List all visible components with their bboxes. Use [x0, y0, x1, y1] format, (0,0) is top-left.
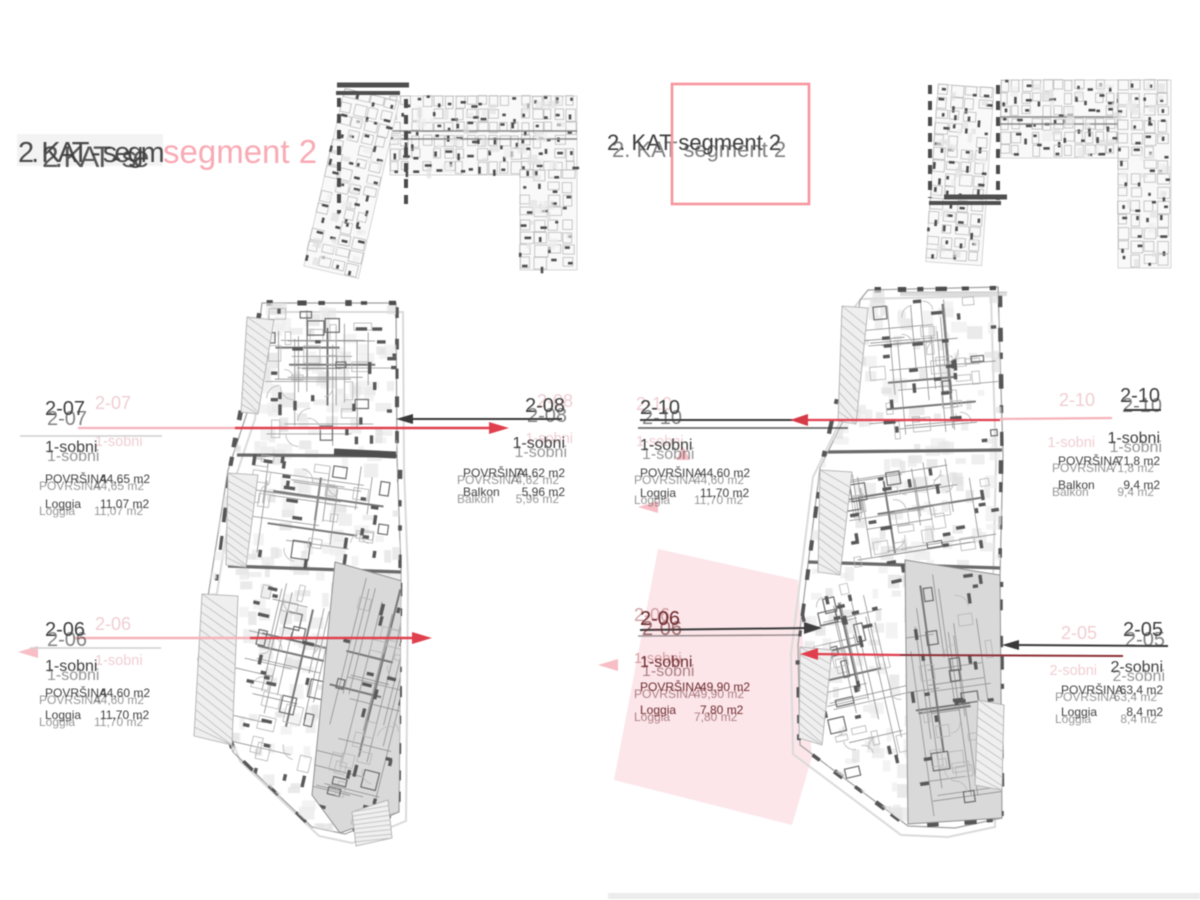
svg-text:11,07 m2: 11,07 m2: [94, 504, 143, 518]
svg-text:2-07: 2-07: [95, 393, 131, 413]
svg-text:POVRŠINA: POVRŠINA: [39, 692, 101, 707]
svg-text:7,80 m2: 7,80 m2: [694, 710, 738, 724]
svg-text:9,4 m2: 9,4 m2: [1117, 485, 1154, 499]
svg-text:POVRŠINA: POVRŠINA: [634, 472, 696, 487]
svg-text:8,4 m2: 8,4 m2: [1120, 712, 1157, 726]
svg-text:11,70 m2: 11,70 m2: [694, 493, 743, 507]
svg-text:Balkon: Balkon: [1052, 485, 1089, 499]
svg-text:1-sobni: 1-sobni: [47, 448, 99, 465]
svg-text:segment 2: segment 2: [163, 133, 317, 170]
svg-text:2-05: 2-05: [1061, 623, 1097, 643]
svg-text:2-07: 2-07: [47, 408, 87, 430]
svg-text:1-sobni: 1-sobni: [642, 663, 694, 680]
svg-text:2-10: 2-10: [642, 407, 682, 429]
svg-text:2. KAT - se: 2. KAT - se: [42, 141, 149, 174]
svg-text:POVRŠINA: POVRŠINA: [1052, 460, 1114, 475]
svg-text:11,70 m2: 11,70 m2: [94, 715, 143, 729]
svg-text:2-sobni: 2-sobni: [1049, 663, 1097, 679]
svg-text:2-10: 2-10: [1122, 395, 1162, 417]
svg-text:44,60 m2: 44,60 m2: [694, 473, 744, 487]
svg-text:63,4 m2: 63,4 m2: [1114, 690, 1158, 704]
svg-text:1-sobni: 1-sobni: [47, 667, 99, 684]
svg-text:71,8 m2: 71,8 m2: [1111, 461, 1155, 475]
svg-text:2-08: 2-08: [527, 405, 567, 427]
svg-text:Loggia: Loggia: [39, 715, 75, 729]
svg-text:2-05: 2-05: [1125, 629, 1165, 651]
svg-text:5,96 m2: 5,96 m2: [516, 492, 560, 506]
svg-text:1-sobni: 1-sobni: [515, 444, 567, 461]
svg-text:2-10: 2-10: [1059, 390, 1095, 410]
svg-text:49,90 m2: 49,90 m2: [694, 687, 744, 701]
svg-text:44,65 m2: 44,65 m2: [94, 479, 144, 493]
svg-text:Loggia: Loggia: [634, 493, 670, 507]
svg-text:Loggia: Loggia: [634, 710, 670, 724]
svg-text:1-sobni: 1-sobni: [642, 446, 694, 463]
svg-text:POVRŠINA: POVRŠINA: [1055, 689, 1117, 704]
svg-text:1-sobni: 1-sobni: [95, 653, 143, 669]
svg-text:POVRŠINA: POVRŠINA: [634, 686, 696, 701]
svg-text:POVRŠINA: POVRŠINA: [39, 478, 101, 493]
svg-text:2-06: 2-06: [95, 614, 131, 634]
svg-text:44,60 m2: 44,60 m2: [94, 693, 144, 707]
svg-text:1-sobni: 1-sobni: [1047, 435, 1095, 451]
svg-text:Loggia: Loggia: [1055, 712, 1091, 726]
svg-text:Balkon: Balkon: [457, 492, 494, 506]
svg-text:2. KAT segment 2: 2. KAT segment 2: [612, 137, 786, 162]
svg-text:2-06: 2-06: [642, 618, 682, 640]
svg-text:Loggia: Loggia: [39, 504, 75, 518]
